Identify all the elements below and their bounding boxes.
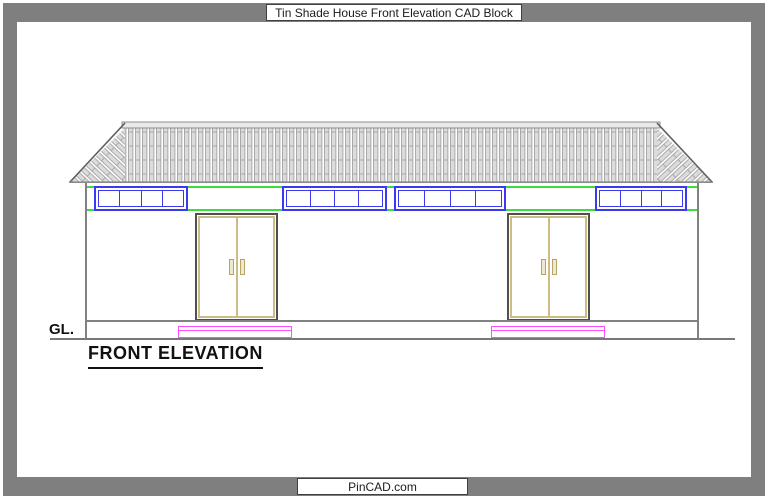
entry-step-2: [491, 326, 605, 338]
footer-brand-box: PinCAD.com: [297, 478, 468, 495]
window-pane: [287, 191, 311, 206]
window-pane: [335, 191, 359, 206]
window-pane: [425, 191, 451, 206]
cad-block-page: Tin Shade House Front Elevation CAD Bloc…: [0, 0, 768, 499]
window-4: [595, 186, 687, 211]
drawing-caption: FRONT ELEVATION: [88, 343, 263, 369]
page-border-right: [751, 3, 765, 496]
window-3-frame: [398, 190, 502, 207]
page-title: Tin Shade House Front Elevation CAD Bloc…: [275, 6, 513, 20]
page-title-box: Tin Shade House Front Elevation CAD Bloc…: [266, 4, 522, 21]
window-pane: [642, 191, 663, 206]
window-1-frame: [98, 190, 184, 207]
roof-sheeting: [125, 128, 657, 182]
door-handle-icon: [552, 259, 557, 275]
roof-ridge-cap: [122, 122, 660, 128]
window-1: [94, 186, 188, 211]
window-pane: [120, 191, 141, 206]
window-4-frame: [599, 190, 683, 207]
door-handle-icon: [240, 259, 245, 275]
door-2-center-meeting-stile: [548, 216, 550, 318]
window-pane: [142, 191, 163, 206]
window-pane: [451, 191, 477, 206]
window-pane: [359, 191, 382, 206]
window-2: [282, 186, 387, 211]
page-border-top: Tin Shade House Front Elevation CAD Bloc…: [3, 3, 765, 22]
entry-step-1: [178, 326, 292, 338]
window-pane: [476, 191, 501, 206]
page-border-bottom: PinCAD.com: [3, 477, 765, 496]
window-pane: [621, 191, 642, 206]
door-1: [195, 213, 278, 321]
window-2-frame: [286, 190, 383, 207]
door-1-center-meeting-stile: [236, 216, 238, 318]
door-2: [507, 213, 590, 321]
roof: [65, 118, 717, 184]
window-pane: [600, 191, 621, 206]
door-handle-icon: [229, 259, 234, 275]
window-pane: [399, 191, 425, 206]
window-3: [394, 186, 506, 211]
plinth-line: [85, 320, 699, 322]
window-pane: [99, 191, 120, 206]
window-pane: [163, 191, 183, 206]
footer-brand: PinCAD.com: [348, 480, 417, 494]
window-pane: [311, 191, 335, 206]
ground-line-label: GL.: [49, 321, 74, 338]
ground-line: [50, 338, 735, 340]
wall-right-line: [697, 183, 699, 339]
wall-left-line: [85, 183, 87, 339]
window-pane: [662, 191, 682, 206]
door-handle-icon: [541, 259, 546, 275]
page-border-left: [3, 3, 17, 496]
